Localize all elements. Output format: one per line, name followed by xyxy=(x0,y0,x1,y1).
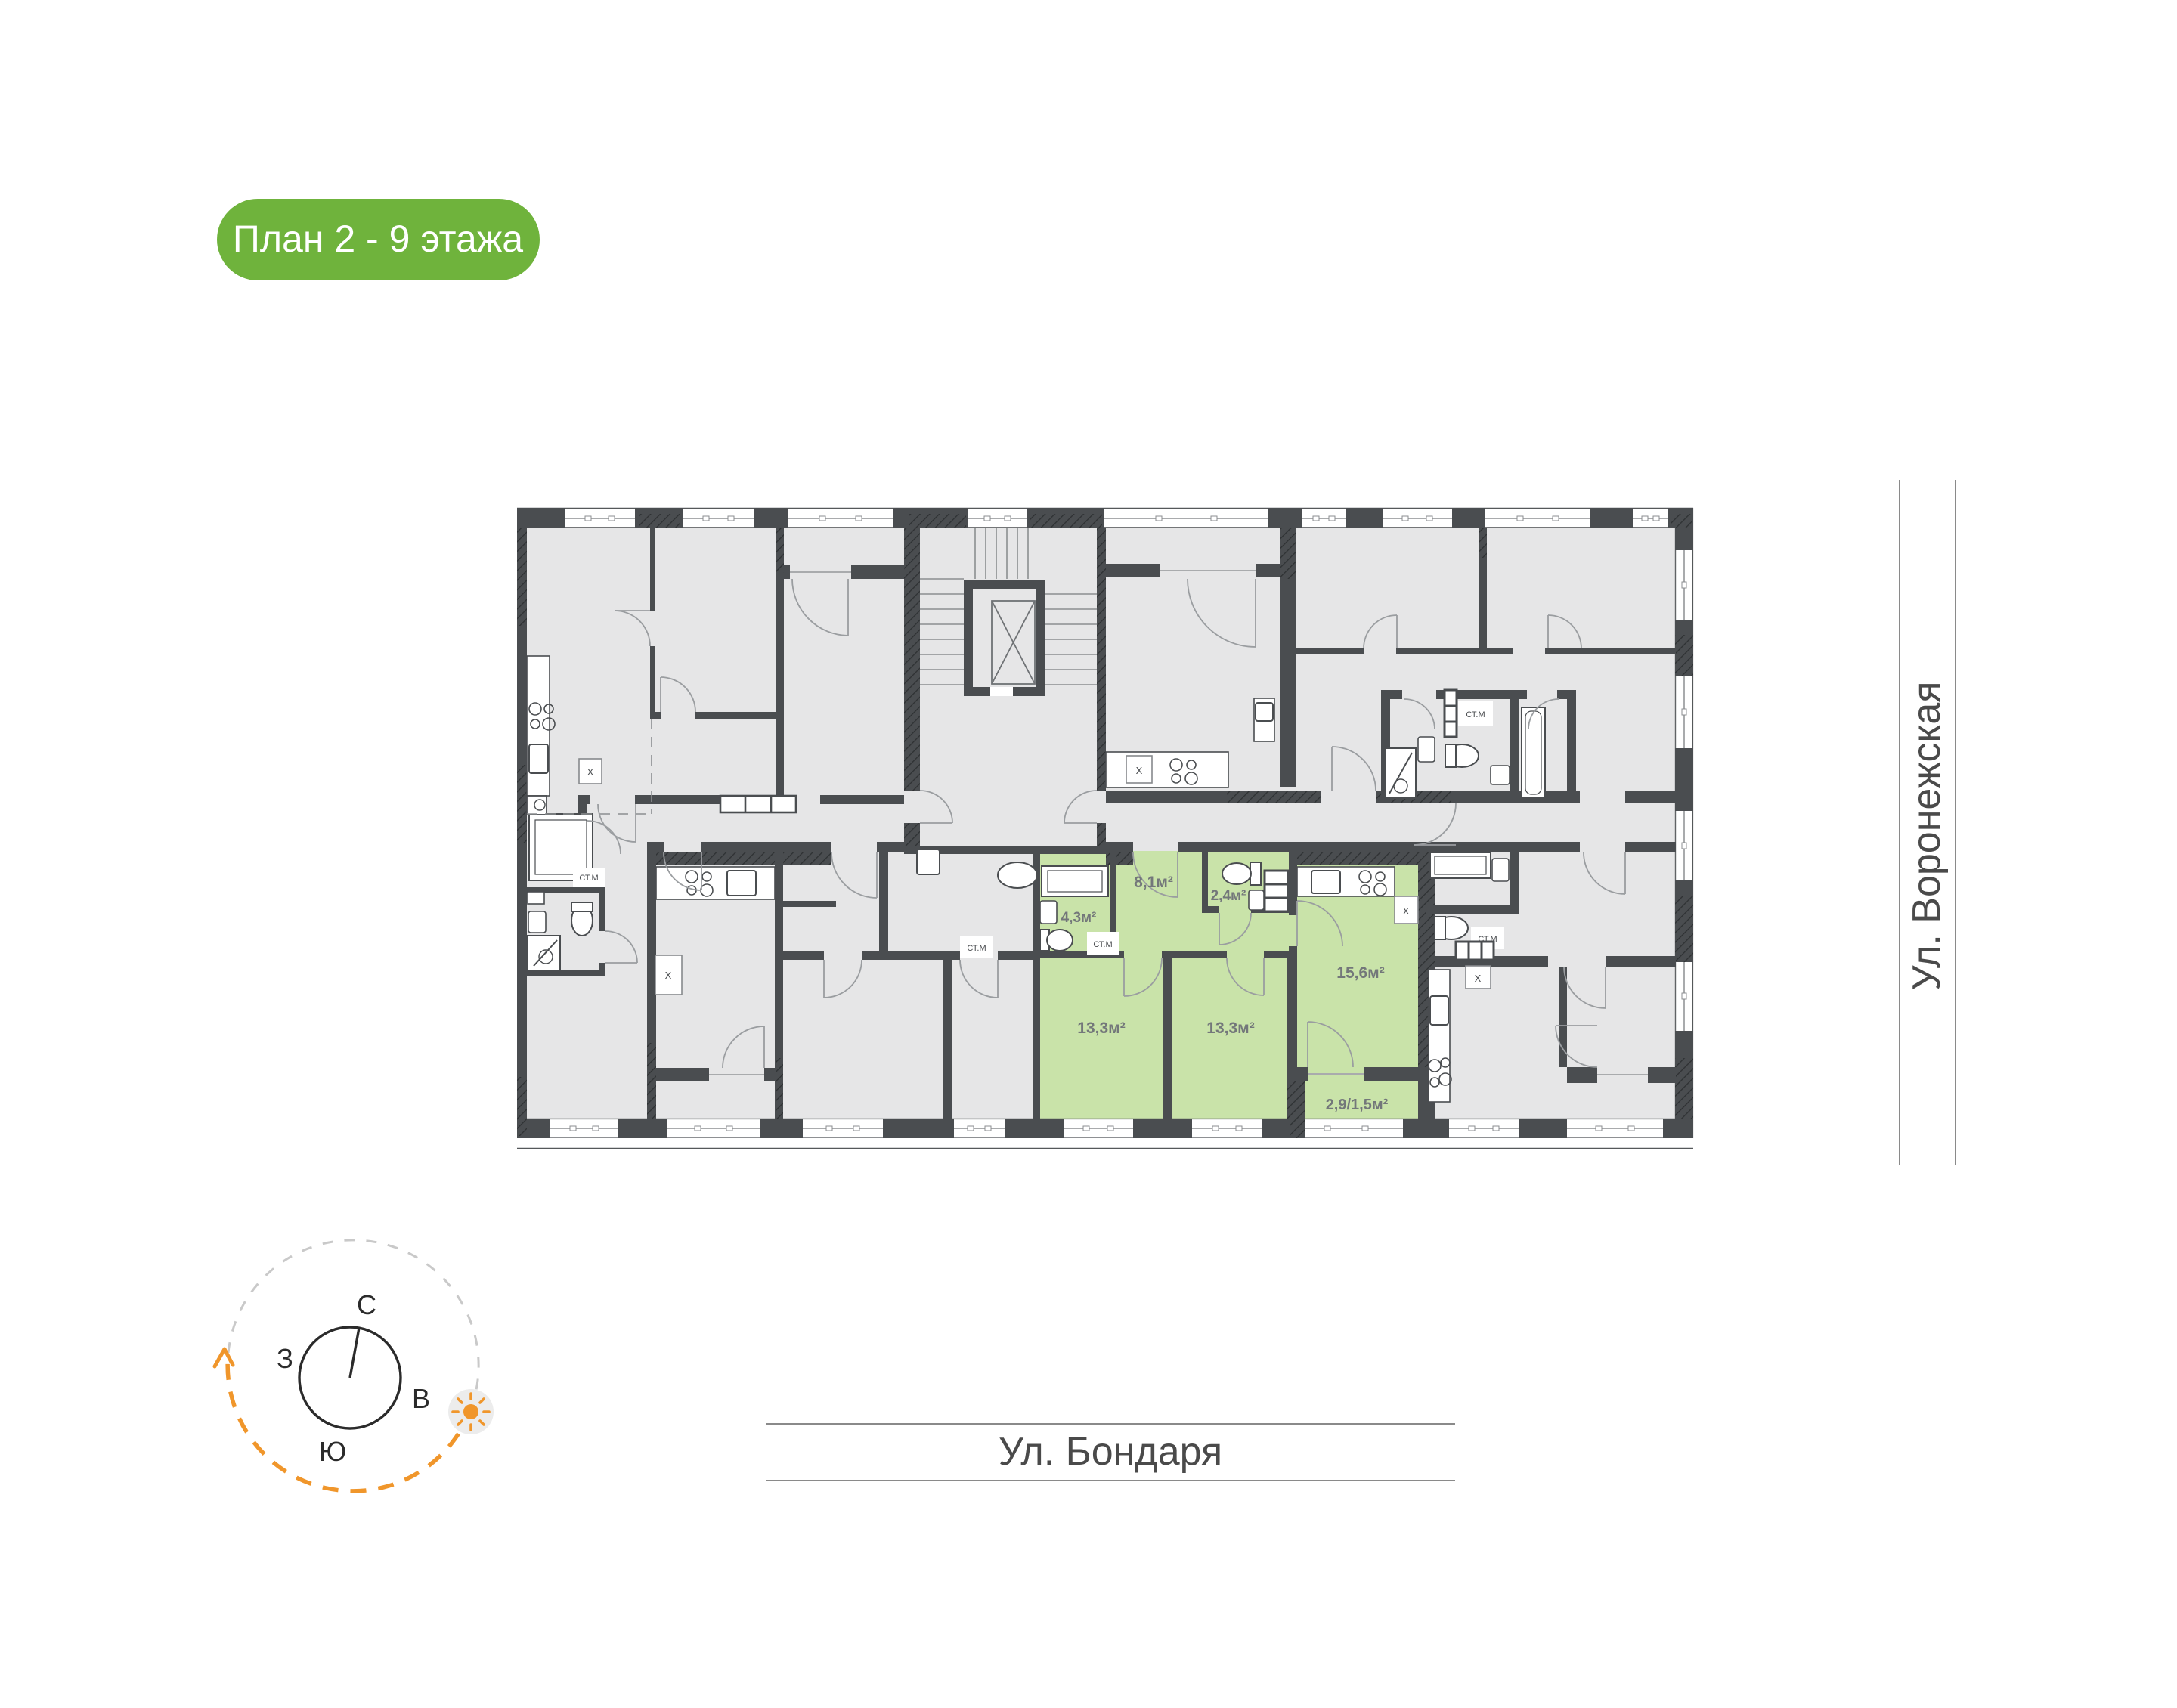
svg-text:В: В xyxy=(412,1383,430,1414)
svg-text:X: X xyxy=(1136,765,1143,776)
svg-text:СТ.М: СТ.М xyxy=(579,874,598,883)
svg-text:X: X xyxy=(587,766,594,778)
svg-text:X: X xyxy=(665,970,672,981)
svg-text:13,3м²: 13,3м² xyxy=(1206,1020,1254,1037)
svg-text:Ул. Воронежская: Ул. Воронежская xyxy=(1905,681,1949,990)
svg-text:СТ.М: СТ.М xyxy=(1478,935,1497,944)
svg-text:СТ.М: СТ.М xyxy=(967,944,986,953)
svg-text:2,9/1,5м²: 2,9/1,5м² xyxy=(1326,1097,1389,1113)
svg-text:2,4м²: 2,4м² xyxy=(1211,888,1246,904)
svg-text:13,3м²: 13,3м² xyxy=(1077,1020,1125,1037)
svg-text:Ул. Бондаря: Ул. Бондаря xyxy=(999,1430,1222,1474)
svg-text:X: X xyxy=(1403,905,1410,917)
svg-text:СТ.М: СТ.М xyxy=(1466,710,1485,719)
svg-text:4,3м²: 4,3м² xyxy=(1061,910,1097,926)
svg-text:8,1м²: 8,1м² xyxy=(1134,874,1173,891)
svg-text:Ю: Ю xyxy=(319,1436,346,1467)
svg-text:СТ.М: СТ.М xyxy=(1093,940,1112,949)
svg-text:X: X xyxy=(1475,973,1482,984)
svg-text:15,6м²: 15,6м² xyxy=(1336,964,1384,982)
svg-text:С: С xyxy=(357,1289,376,1320)
svg-text:План 2 - 9 этажа: План 2 - 9 этажа xyxy=(233,218,523,260)
svg-text:З: З xyxy=(277,1343,293,1374)
